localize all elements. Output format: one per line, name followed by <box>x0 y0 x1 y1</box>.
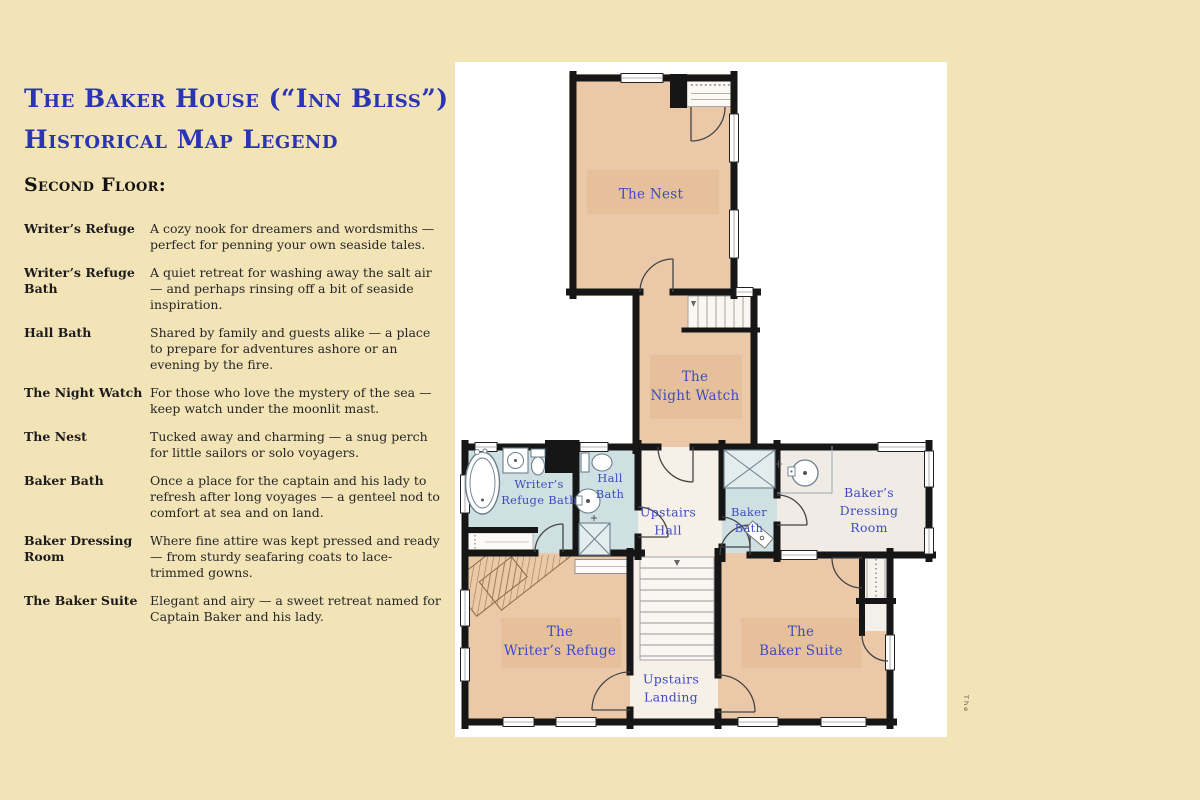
room-label-upstairs-landing: Upstairs Landing <box>643 671 699 706</box>
legend-description: Shared by family and guests alike — a pl… <box>150 325 442 373</box>
room-label-the-writers-refuge: The Writer’s Refuge <box>504 623 616 661</box>
legend-entry: The Night Watch For those who love the m… <box>24 385 452 417</box>
legend-entry: Writer’s Refuge A cozy nook for dreamers… <box>24 221 452 253</box>
legend-term: The Baker Suite <box>24 593 150 625</box>
legend-term: The Night Watch <box>24 385 150 417</box>
room-label-writers-refuge-bath: Writer’s Refuge Bath <box>501 476 577 508</box>
legend-description: Where fine attire was kept pressed and r… <box>150 533 442 581</box>
shelf-writers-refuge <box>575 560 630 574</box>
page-title-line1: The Baker House (“Inn Bliss”) <box>24 86 452 111</box>
stairs-upstairs-landing <box>640 557 714 660</box>
legend-term: Baker Dressing Room <box>24 533 150 581</box>
legend-entry: Writer’s Refuge Bath A quiet retreat for… <box>24 265 452 313</box>
room-label-the-night-watch: The Night Watch <box>651 368 740 406</box>
room-label-baker-bath: Baker Bath <box>731 504 767 536</box>
page-title-line2: Historical Map Legend <box>24 127 452 152</box>
legend-entry: Hall Bath Shared by family and guests al… <box>24 325 452 373</box>
closet-baker-suite <box>862 555 890 631</box>
section-heading: Second Floor: <box>24 176 452 195</box>
closet-writers-refuge-bath <box>468 533 533 551</box>
legend-entry: The Baker Suite Elegant and airy — a swe… <box>24 593 452 625</box>
legend-description: Elegant and airy — a sweet retreat named… <box>150 593 442 625</box>
legend-entry: Baker Dressing Room Where fine attire wa… <box>24 533 452 581</box>
legend-term: Writer’s Refuge <box>24 221 150 253</box>
legend-term: Baker Bath <box>24 473 150 521</box>
floorplan-panel: The Nest The Night Watch Writer’s Refuge… <box>455 62 947 737</box>
stairs-night-watch <box>688 296 752 328</box>
legend-term: Writer’s Refuge Bath <box>24 265 150 313</box>
room-label-upstairs-hall: Upstairs Hall <box>640 504 696 539</box>
legend-description: A cozy nook for dreamers and wordsmiths … <box>150 221 442 253</box>
legend-term: The Nest <box>24 429 150 461</box>
legend-term: Hall Bath <box>24 325 150 373</box>
legend-description: A quiet retreat for washing away the sal… <box>150 265 442 313</box>
legend-description: Tucked away and charming — a snug perch … <box>150 429 442 461</box>
vertical-watermark-text: The <box>962 695 970 713</box>
legend-entry: The Nest Tucked away and charming — a sn… <box>24 429 452 461</box>
legend-description: For those who love the mystery of the se… <box>150 385 442 417</box>
legend-entry: Baker Bath Once a place for the captain … <box>24 473 452 521</box>
room-label-hall-bath: Hall Bath <box>596 470 625 502</box>
room-label-the-baker-suite: The Baker Suite <box>759 623 843 661</box>
legend-description: Once a place for the captain and his lad… <box>150 473 442 521</box>
room-label-bakers-dressing-room: Baker’s Dressing Room <box>830 484 908 537</box>
room-label-the-nest: The Nest <box>619 186 684 205</box>
legend-panel: The Baker House (“Inn Bliss”) Historical… <box>24 86 452 637</box>
